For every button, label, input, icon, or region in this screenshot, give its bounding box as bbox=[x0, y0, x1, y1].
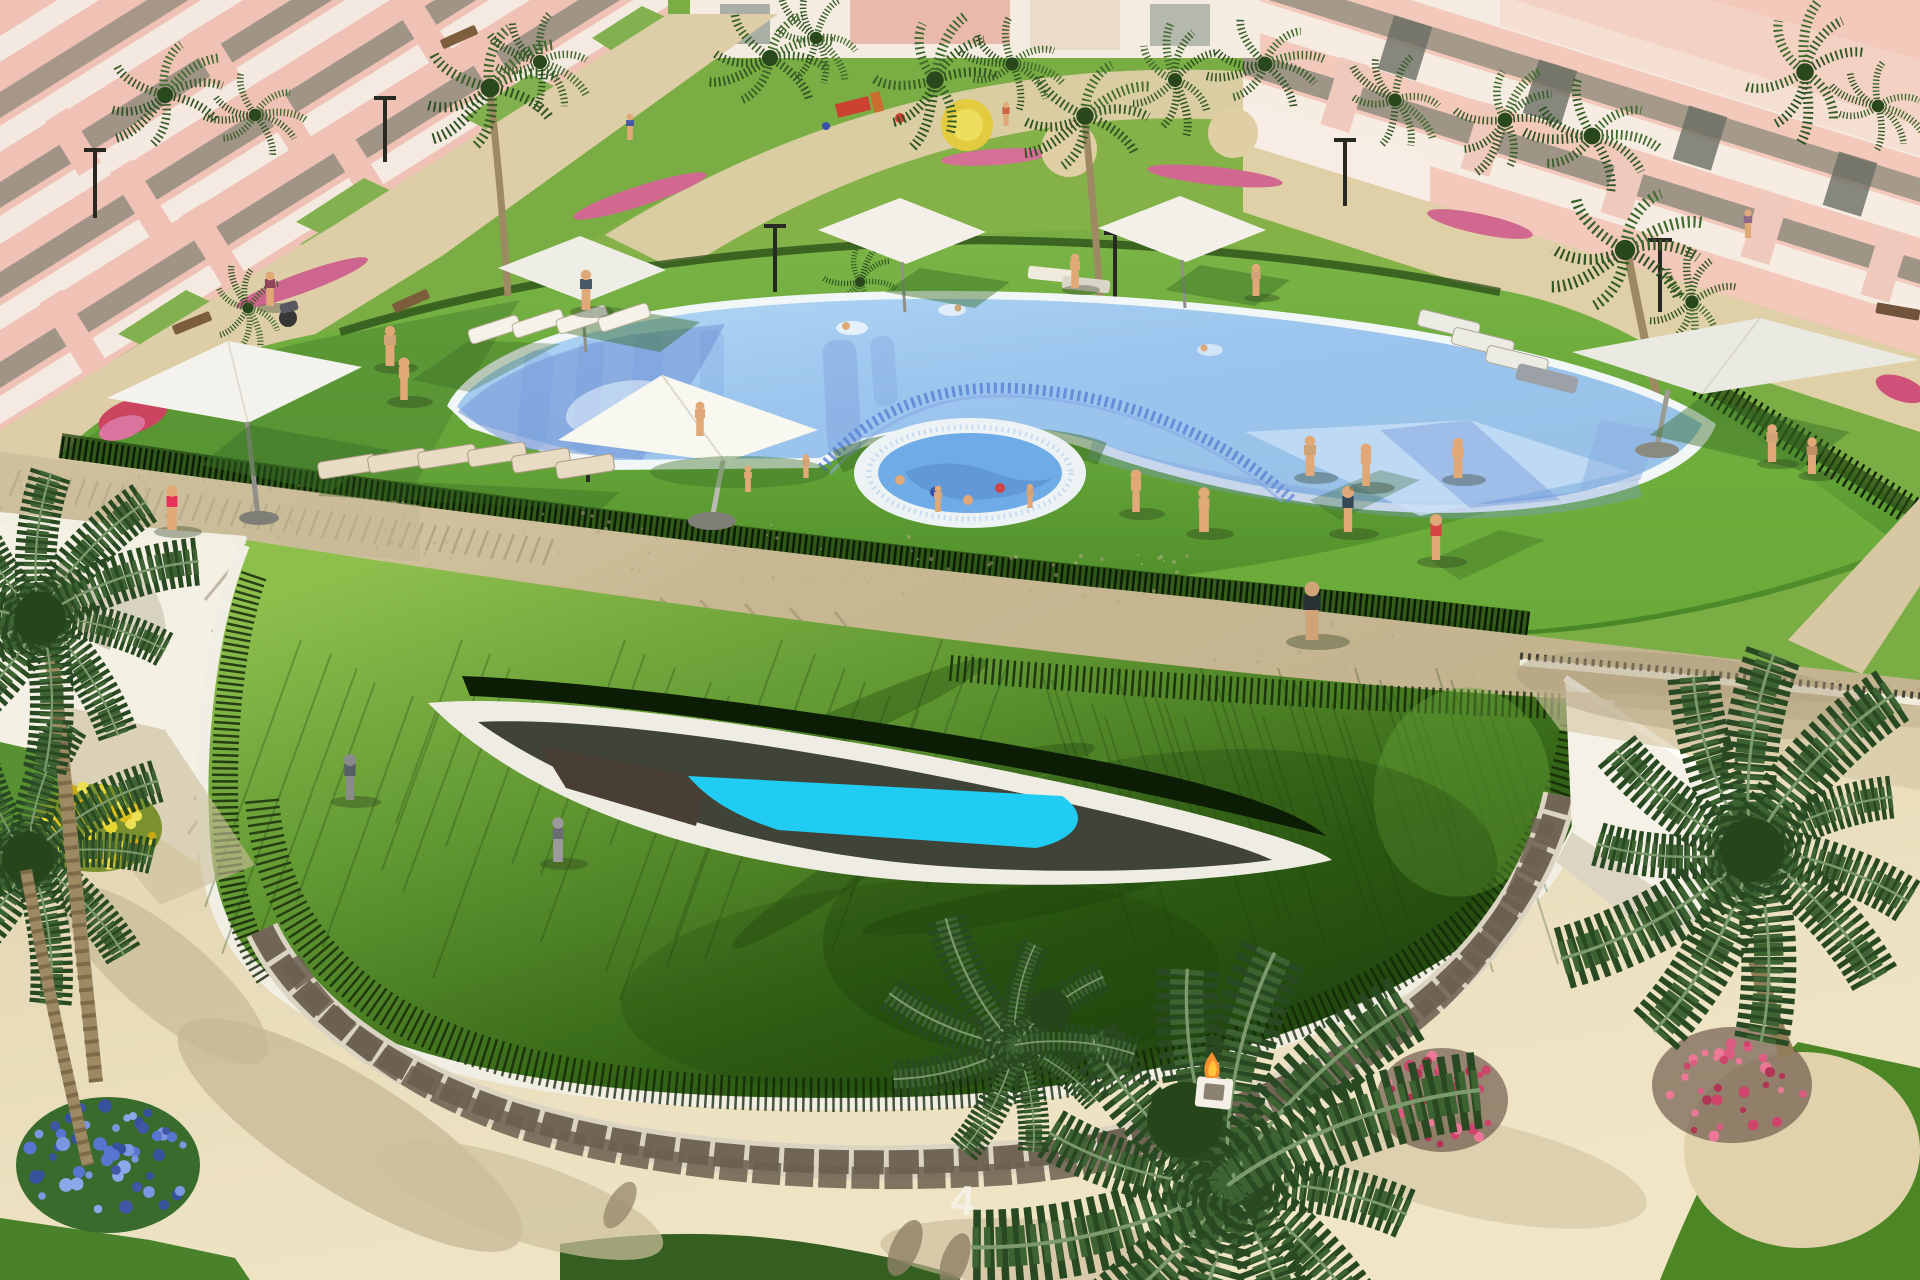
svg-text:4: 4 bbox=[949, 1176, 976, 1225]
